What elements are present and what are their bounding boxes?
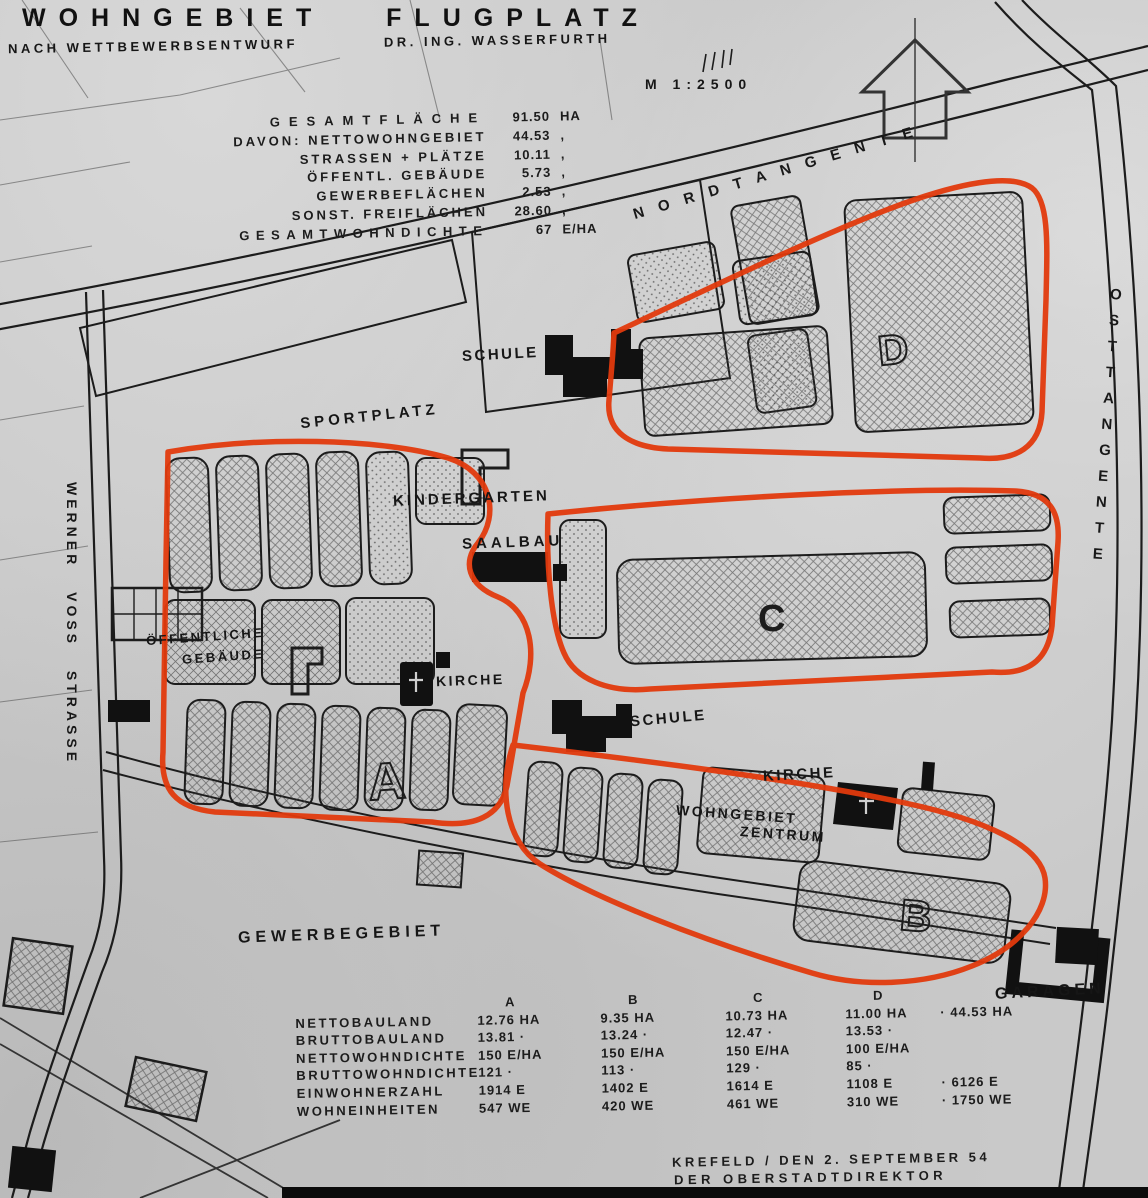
map-canvas: WOHNGEBIET FLUGPLATZ NACH WETTBEWERBSENT…: [0, 0, 1148, 1198]
area-stats-table: GESAMTFLÄCHE91.50HA DAVON: NETTOWOHNGEBI…: [58, 107, 621, 250]
label-kirche-left: KIRCHE: [436, 671, 505, 689]
label-saalbau: SAALBAU: [462, 532, 564, 553]
district-letter-c: C: [758, 598, 785, 641]
district-letter-b: B: [898, 891, 934, 944]
table-col-header-b: B: [600, 990, 725, 1007]
district-c-blocks: [560, 494, 1053, 664]
tally-ticks: [703, 49, 732, 72]
density-table: A B C D NETTOBAULAND12.76 HA9.35 HA10.73…: [295, 985, 1042, 1121]
district-letter-d: D: [876, 325, 911, 376]
bottom-edge-band: [282, 1187, 1148, 1198]
district-d-blocks: [627, 192, 1034, 437]
street-label-werner-voss: WERNER VOSS STRASSE: [64, 482, 80, 765]
table-col-header-a: A: [477, 993, 600, 1010]
district-letter-a: A: [366, 751, 408, 813]
district-b-blocks: [523, 761, 1012, 965]
scale-label: M 1:2500: [645, 76, 752, 92]
table-col-header-c: C: [725, 988, 845, 1005]
page-title: WOHNGEBIET FLUGPLATZ: [22, 4, 650, 33]
table-col-header-d: D: [845, 987, 940, 1004]
